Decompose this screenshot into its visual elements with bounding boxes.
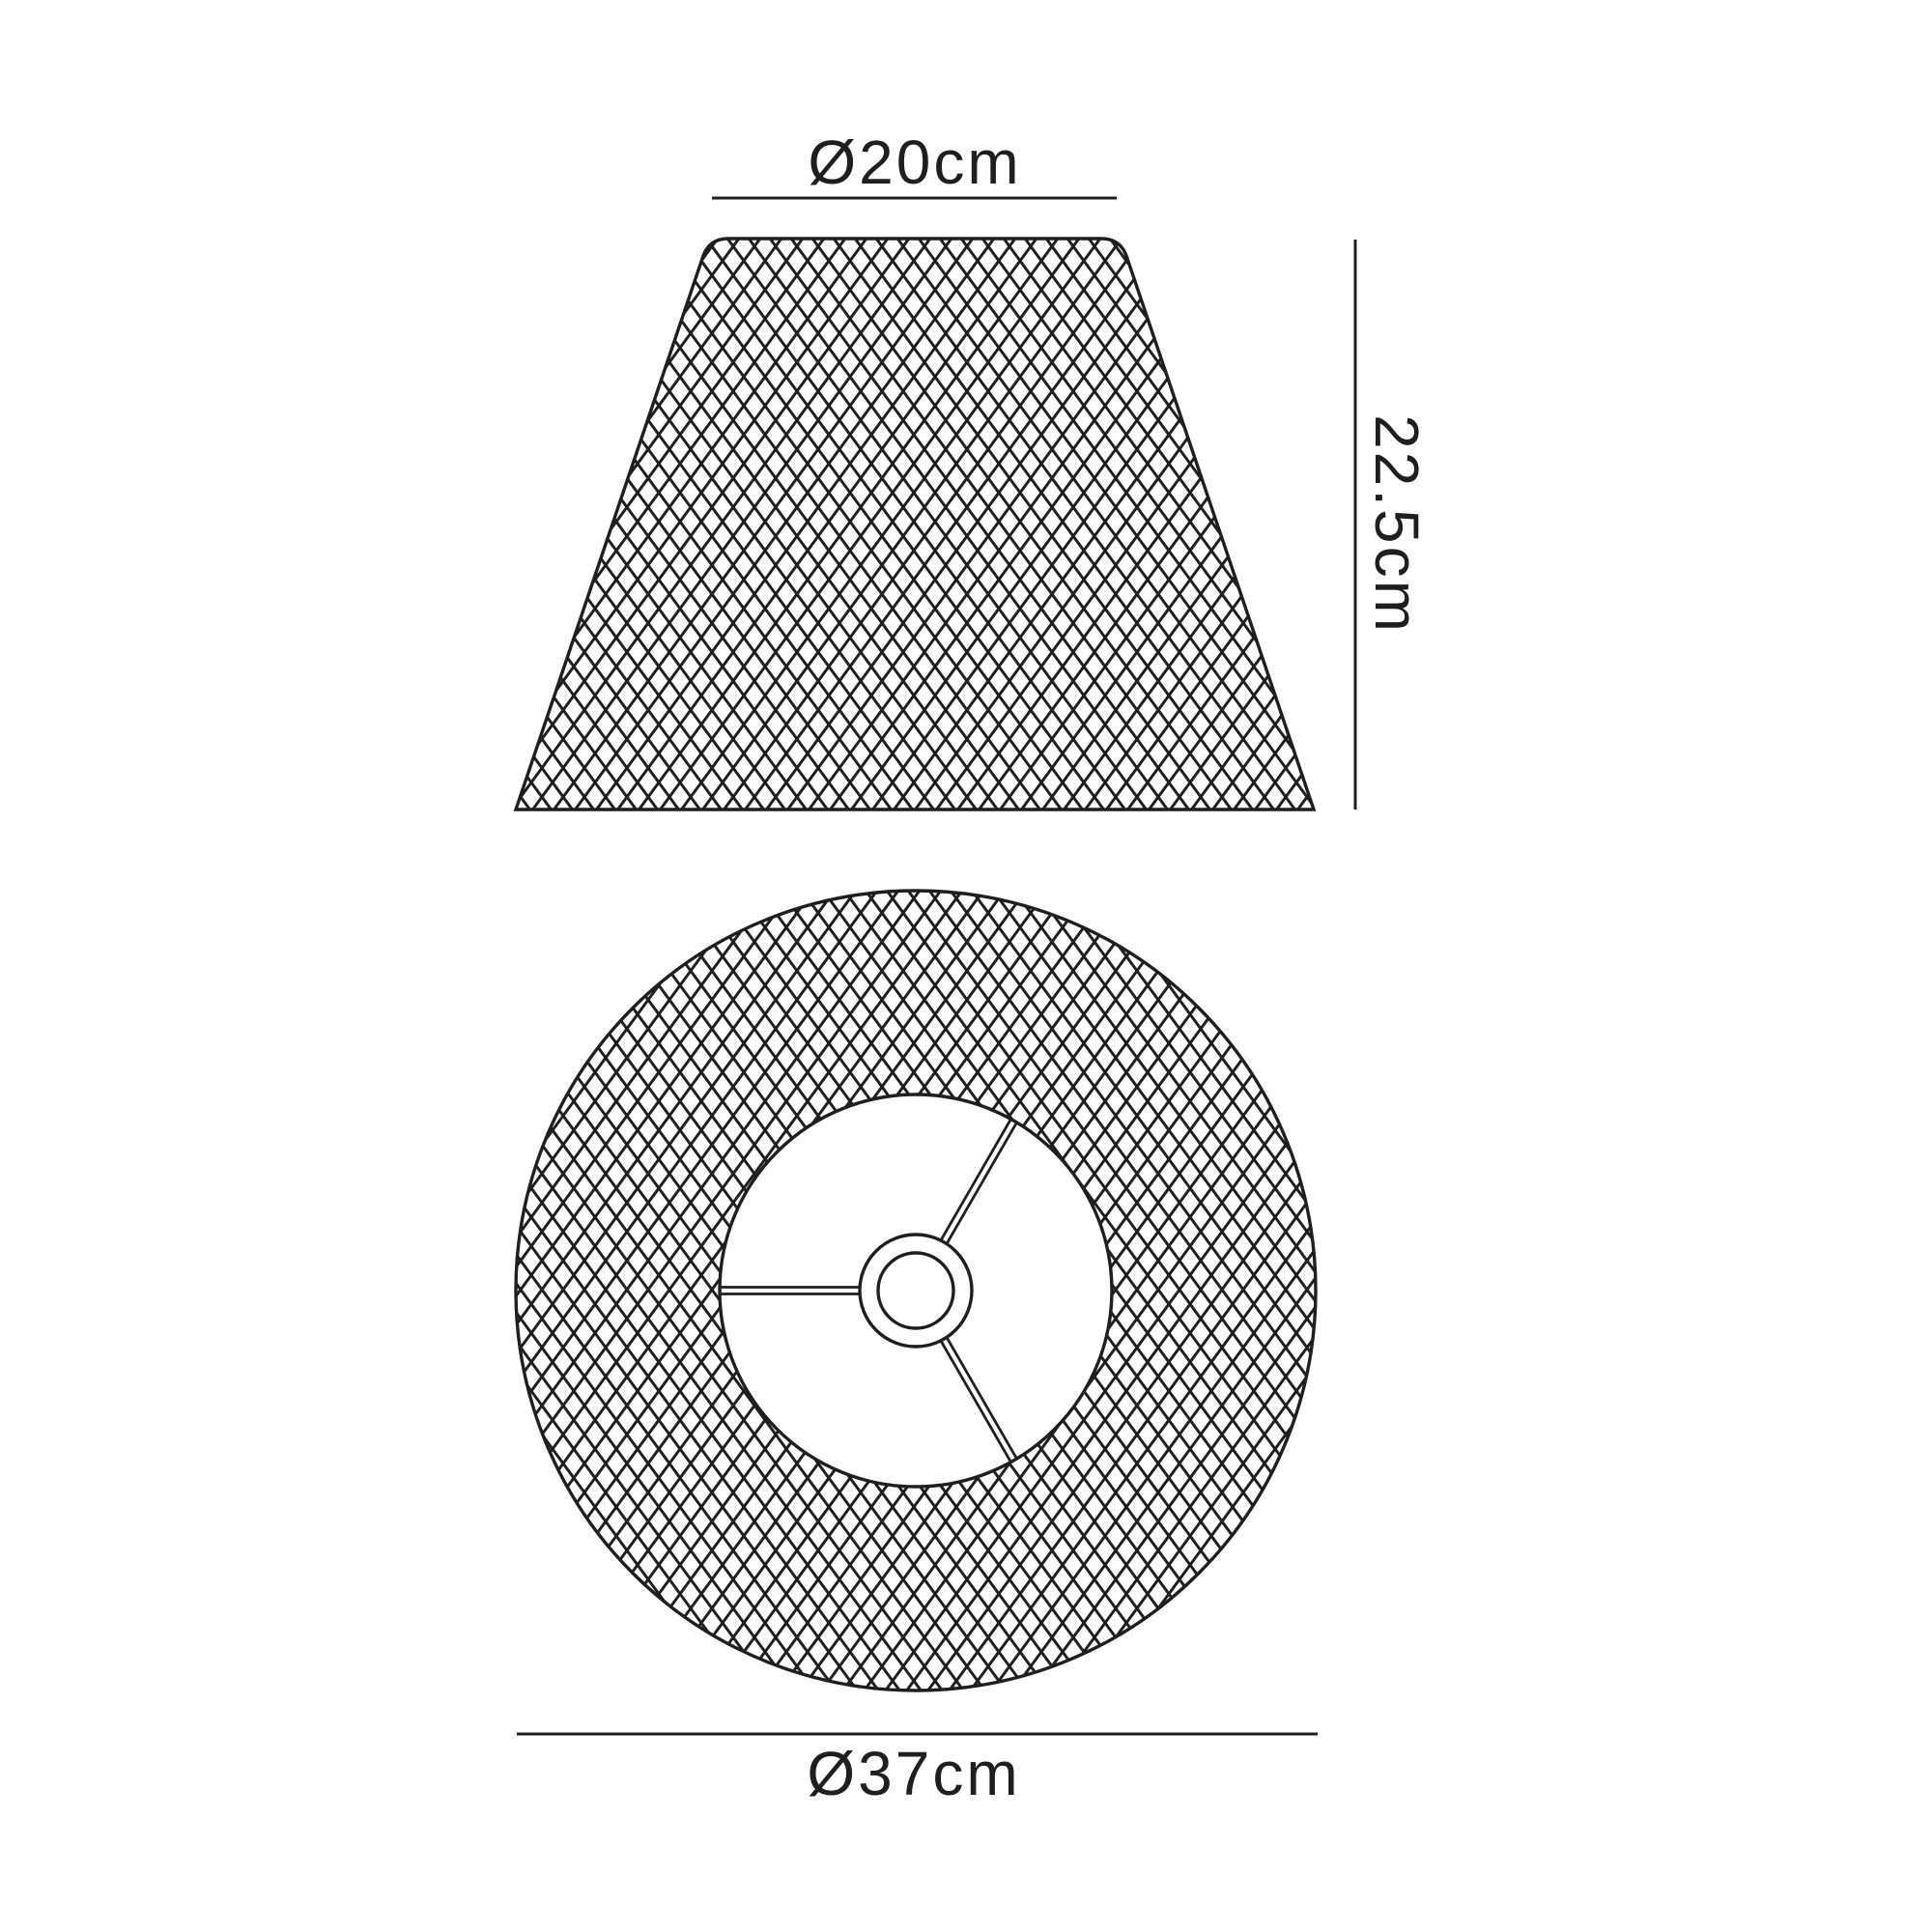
spider-hub-inner-ring <box>878 1253 953 1328</box>
lampshade-dimension-diagram: Ø20cm 22.5cm <box>0 0 1932 1932</box>
bottom-diameter-label: Ø37cm <box>807 1739 1020 1808</box>
side-view-shade-outline <box>516 239 1314 810</box>
top-view: Ø37cm <box>516 891 1318 1808</box>
side-view: Ø20cm 22.5cm <box>516 128 1432 810</box>
diagram-drawing: Ø20cm 22.5cm <box>0 0 1932 1932</box>
top-diameter-label: Ø20cm <box>808 128 1021 197</box>
height-label: 22.5cm <box>1362 414 1432 635</box>
